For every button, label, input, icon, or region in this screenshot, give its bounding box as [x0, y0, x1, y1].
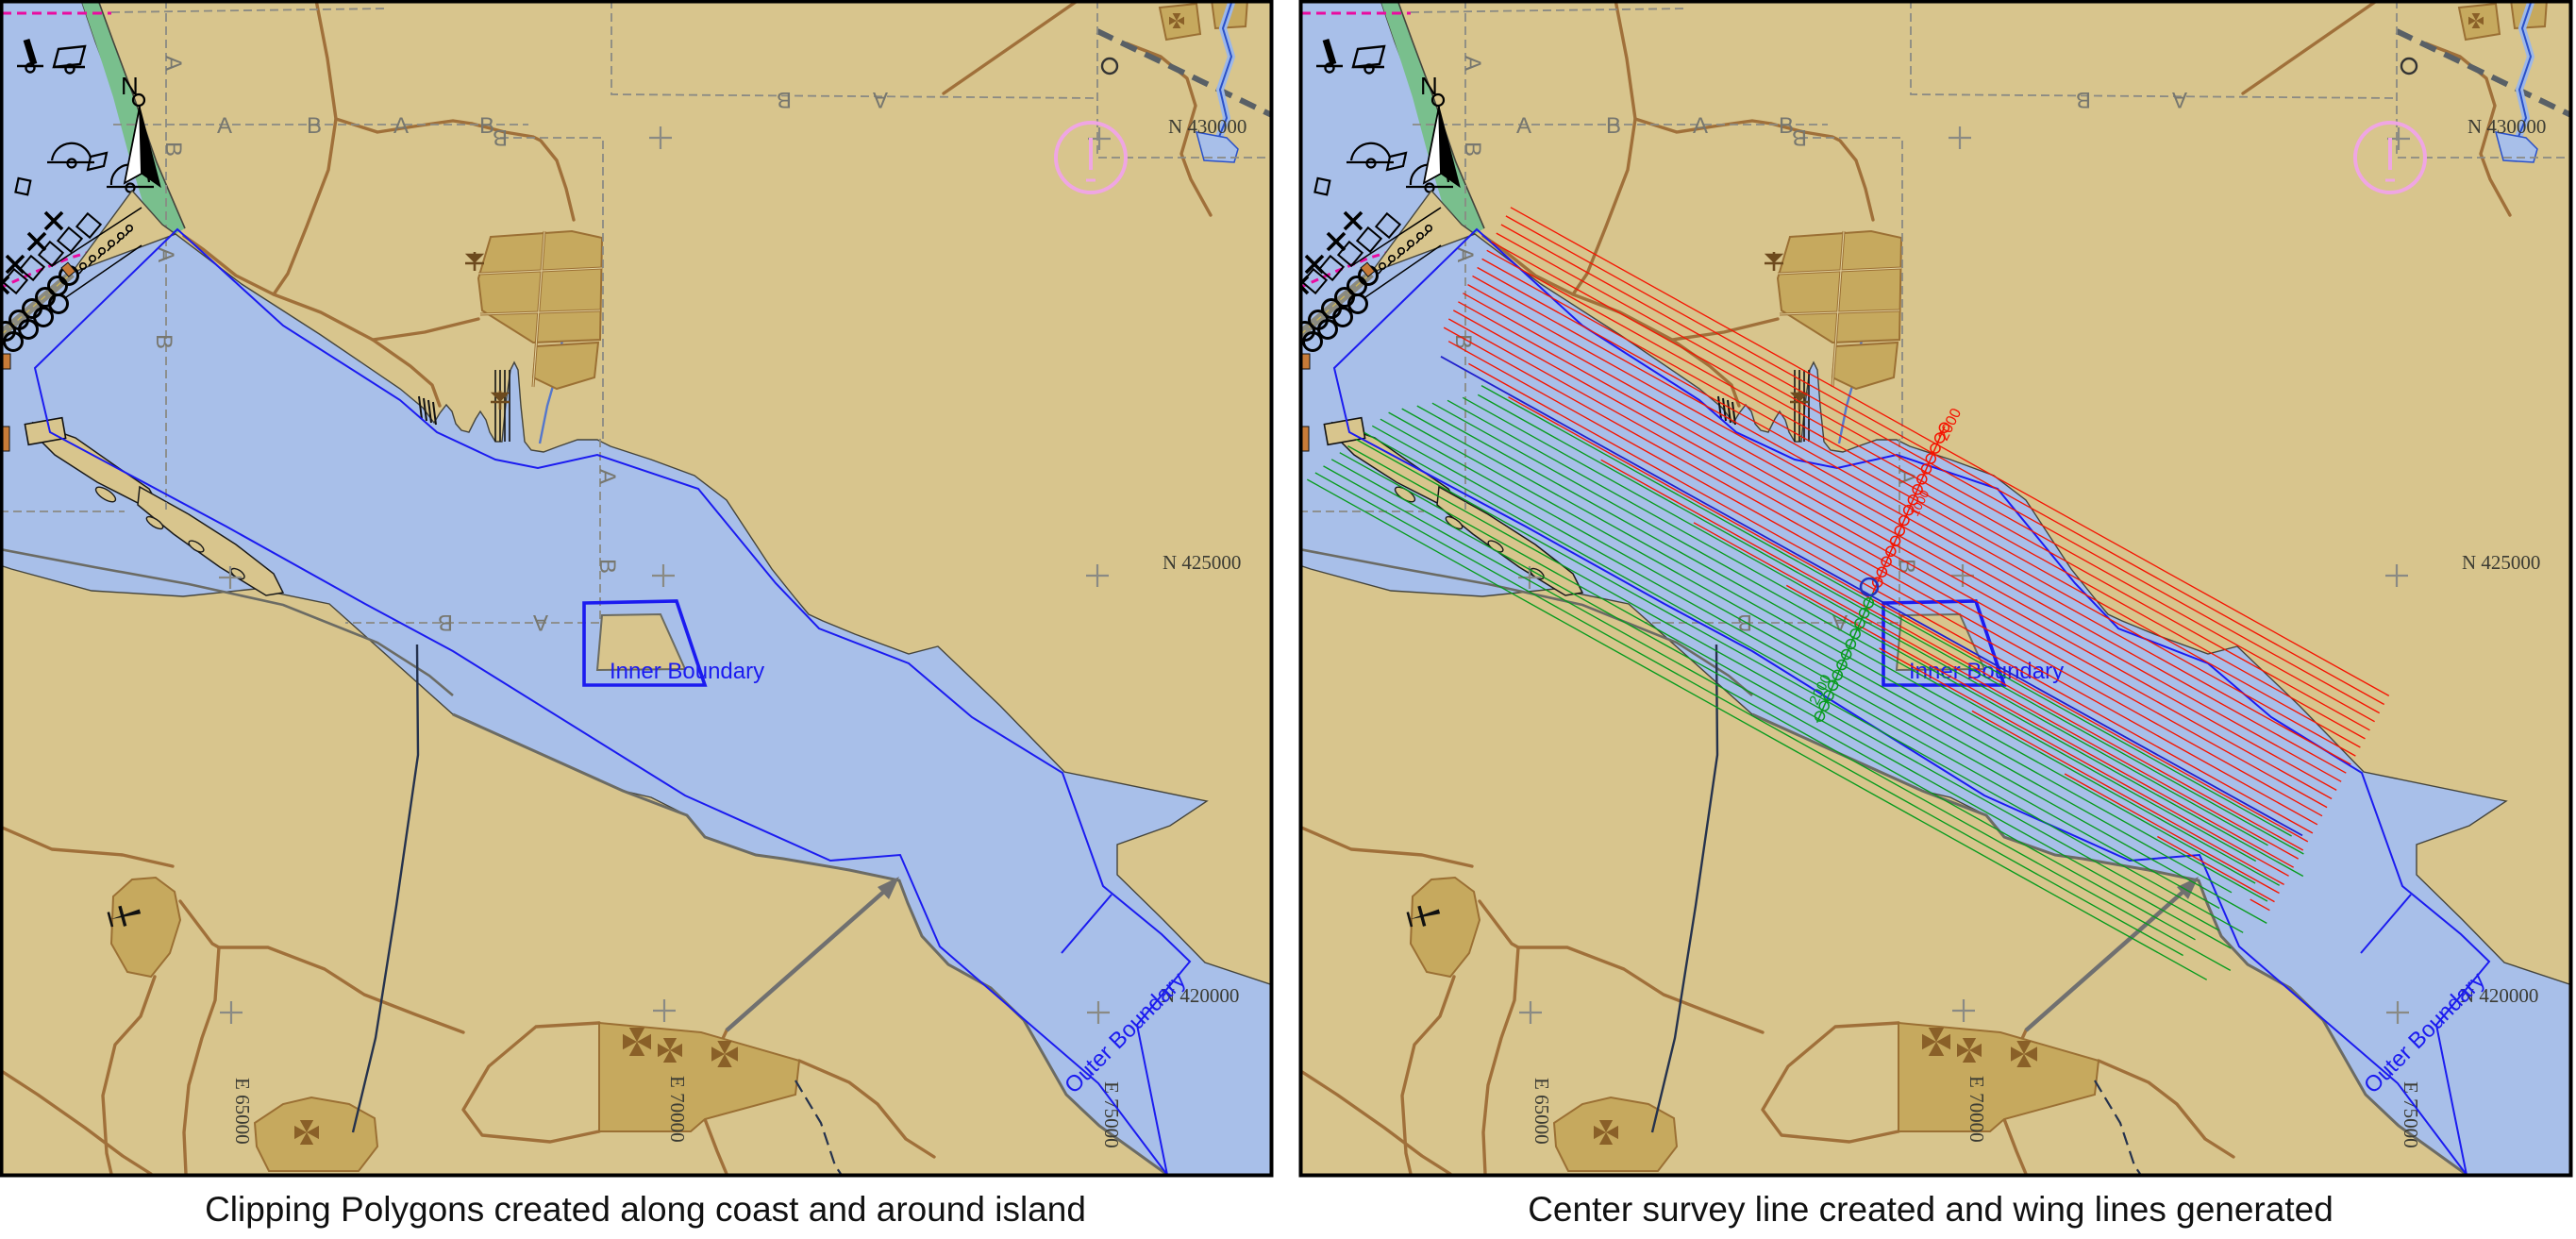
svg-text:Center survey line created and: Center survey line created and wing line… — [1528, 1190, 2333, 1229]
svg-text:Clipping Polygons created alon: Clipping Polygons created along coast an… — [205, 1190, 1086, 1229]
